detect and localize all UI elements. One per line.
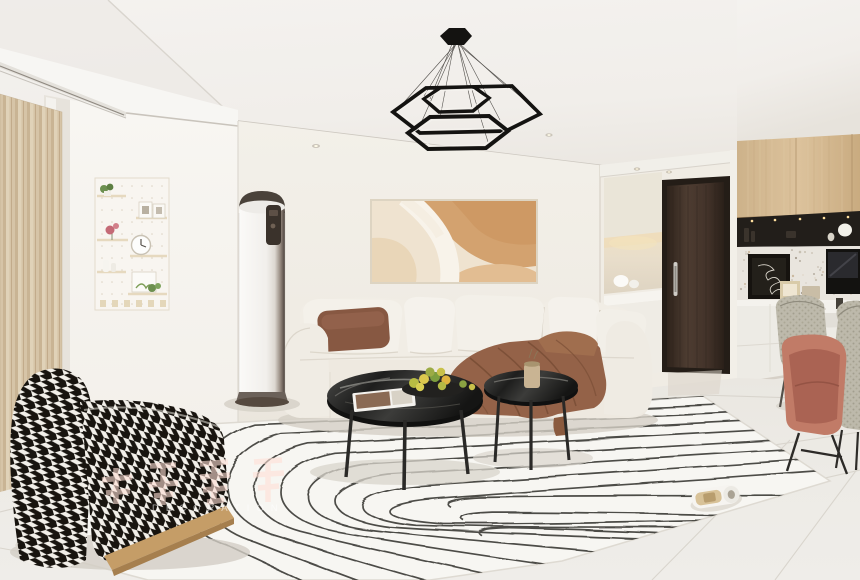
svg-text:DECORATION: DECORATION bbox=[152, 503, 285, 514]
